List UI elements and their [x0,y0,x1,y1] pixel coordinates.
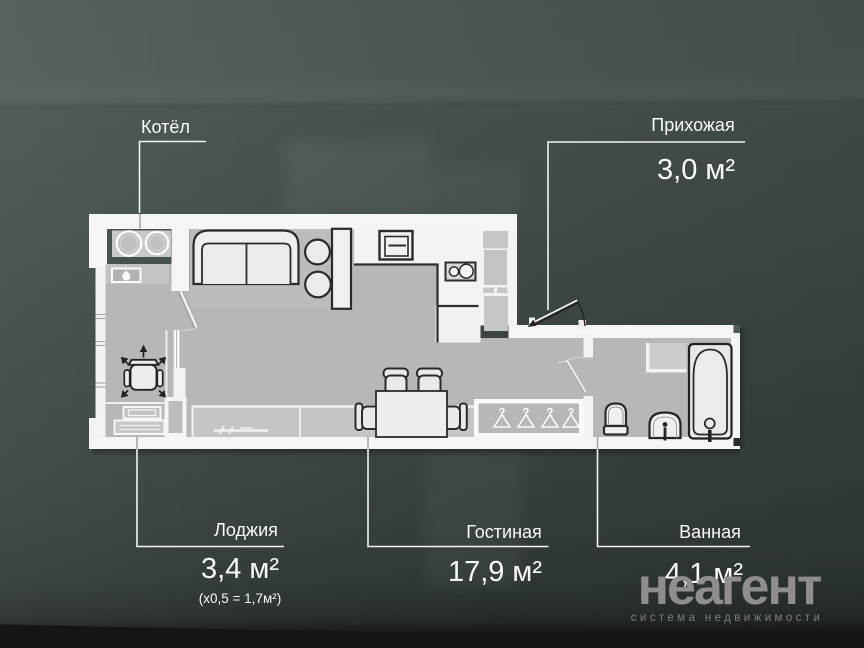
svg-text:17,9 м²: 17,9 м² [448,556,542,588]
svg-text:неагент: неагент [638,558,822,616]
svg-text:3,0 м²: 3,0 м² [657,154,735,186]
svg-text:3,4 м²: 3,4 м² [201,553,279,585]
svg-text:система недвижимости: система недвижимости [631,612,824,624]
svg-text:Прихожая: Прихожая [651,115,734,135]
svg-text:Котёл: Котёл [141,117,190,137]
svg-text:Гостиная: Гостиная [466,522,542,542]
svg-text:Ванная: Ванная [679,522,741,542]
svg-text:Лоджия: Лоджия [214,520,278,540]
svg-text:(х0,5 = 1,7м²): (х0,5 = 1,7м²) [199,591,281,606]
